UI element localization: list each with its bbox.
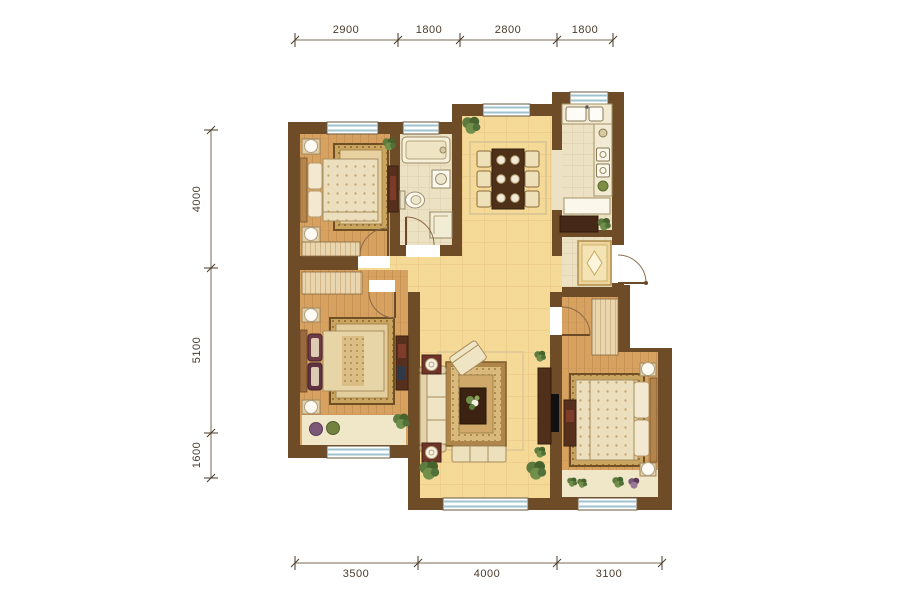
tv-dresser [388, 166, 398, 212]
window [403, 122, 439, 134]
nightstand [302, 308, 320, 322]
closet [302, 272, 362, 294]
dim-top-3: 2800 [495, 24, 521, 36]
dim-line-left [204, 126, 218, 482]
window [578, 498, 637, 510]
floor-plan-drawing [0, 0, 900, 600]
stove-burner [597, 148, 610, 161]
bed [300, 330, 384, 392]
window [327, 122, 378, 134]
pouf [310, 423, 323, 436]
dim-bottom-2: 4000 [474, 568, 500, 580]
tv-dresser [396, 336, 408, 390]
window [443, 498, 528, 510]
bench [452, 446, 506, 462]
dim-bottom-1: 3500 [343, 568, 369, 580]
floor-plan-page: 2900 1800 2800 1800 4000 5100 1600 3500 … [0, 0, 900, 600]
dim-top-1: 2900 [333, 24, 359, 36]
pouf [327, 422, 340, 435]
sofa [420, 366, 446, 452]
dim-left-1: 4000 [191, 186, 203, 212]
side-table [422, 443, 441, 462]
bathtub [402, 137, 450, 163]
nightstand [640, 363, 656, 377]
coffee-table [460, 388, 486, 424]
dim-bottom-3: 3100 [596, 568, 622, 580]
kitchen-cabinet [564, 198, 610, 214]
tv [551, 394, 559, 432]
bed [576, 378, 657, 462]
kitchen-dark-cabinet [560, 216, 598, 232]
dim-top-4: 1800 [572, 24, 598, 36]
nightstand [640, 463, 656, 477]
shower [430, 212, 452, 238]
window [483, 104, 530, 116]
toilet [400, 191, 425, 209]
entry-rug [578, 241, 611, 285]
dining-table [492, 149, 524, 209]
kettle-icon [599, 129, 607, 137]
window [570, 92, 608, 104]
sink-counter [562, 104, 612, 124]
wardrobe [592, 299, 618, 355]
window [327, 446, 390, 458]
nightstand [302, 139, 320, 154]
nightstand [302, 400, 320, 414]
dim-top-2: 1800 [416, 24, 442, 36]
side-table [422, 355, 441, 374]
stove-burner [597, 164, 610, 177]
basin-icon [598, 181, 608, 191]
side-counter [594, 124, 612, 196]
dresser [564, 400, 576, 446]
closet [302, 242, 360, 256]
washbasin [432, 170, 450, 188]
dim-left-2: 5100 [191, 337, 203, 363]
entry [578, 241, 611, 285]
nightstand [302, 227, 320, 242]
dim-left-3: 1600 [191, 442, 203, 468]
